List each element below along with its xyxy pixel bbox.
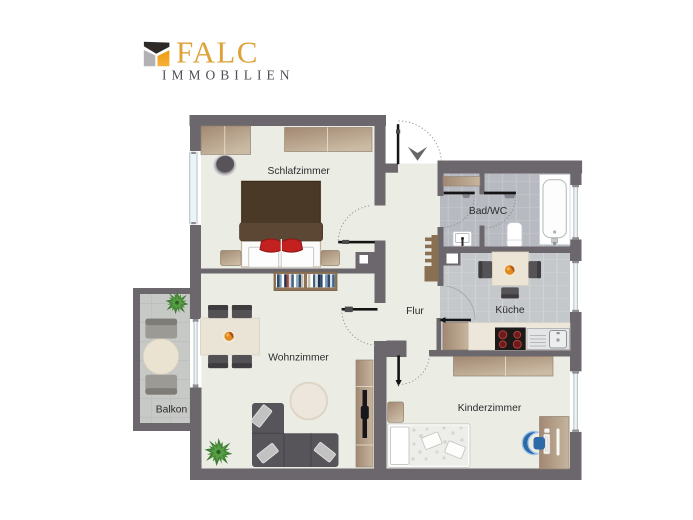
svg-text:Balkon: Balkon (156, 404, 188, 415)
svg-text:Kinderzimmer: Kinderzimmer (458, 403, 522, 414)
svg-text:Bad/WC: Bad/WC (469, 206, 508, 217)
svg-text:Küche: Küche (495, 305, 524, 316)
svg-text:IMMOBILIEN: IMMOBILIEN (162, 68, 295, 83)
svg-text:Schlafzimmer: Schlafzimmer (268, 166, 331, 177)
svg-text:FALC: FALC (176, 34, 259, 69)
svg-text:Wohnzimmer: Wohnzimmer (268, 352, 329, 363)
svg-text:Flur: Flur (406, 306, 424, 317)
